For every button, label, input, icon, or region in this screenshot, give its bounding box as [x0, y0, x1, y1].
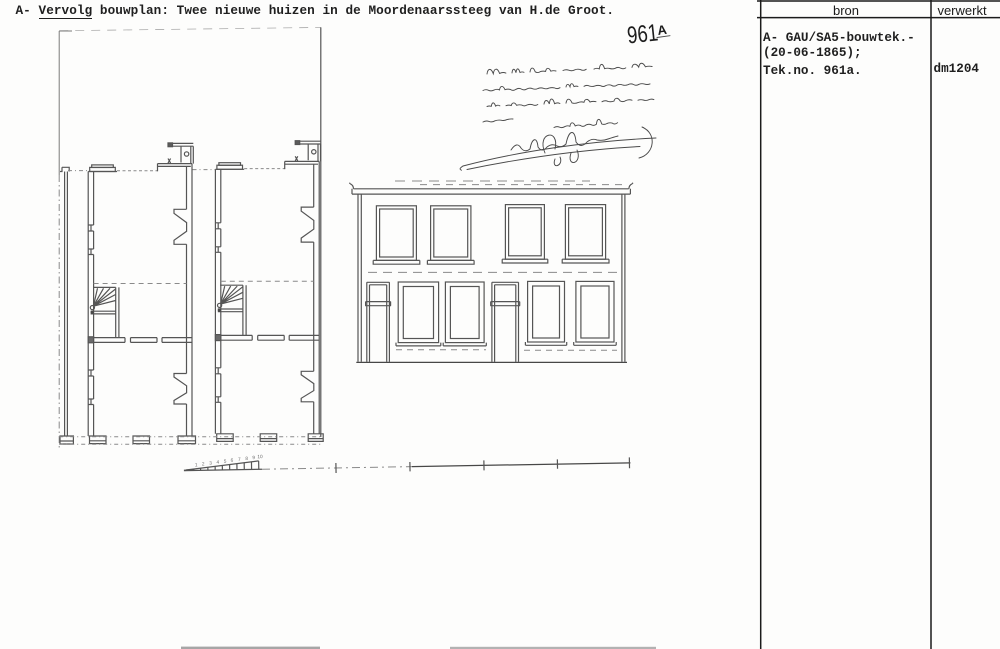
svg-text:A: A — [656, 22, 668, 38]
svg-text:8: 8 — [245, 456, 248, 462]
svg-text:2: 2 — [202, 461, 205, 467]
svg-text:4: 4 — [216, 460, 219, 466]
svg-text:9: 9 — [252, 455, 255, 461]
svg-text:6: 6 — [231, 458, 234, 464]
svg-text:7: 7 — [238, 457, 241, 463]
svg-text:10: 10 — [257, 454, 263, 460]
svg-text:1: 1 — [195, 462, 198, 468]
svg-text:5: 5 — [224, 459, 227, 465]
svg-text:961: 961 — [626, 19, 660, 49]
svg-text:3: 3 — [209, 461, 212, 467]
